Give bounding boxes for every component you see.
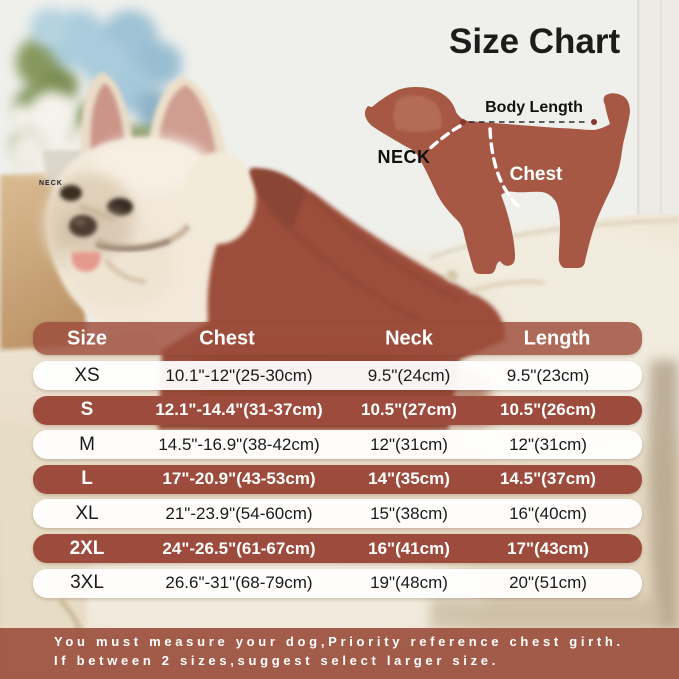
svg-text:Chest: Chest — [510, 164, 563, 185]
svg-text:NECK: NECK — [377, 147, 430, 167]
svg-text:Body Length: Body Length — [485, 99, 583, 116]
